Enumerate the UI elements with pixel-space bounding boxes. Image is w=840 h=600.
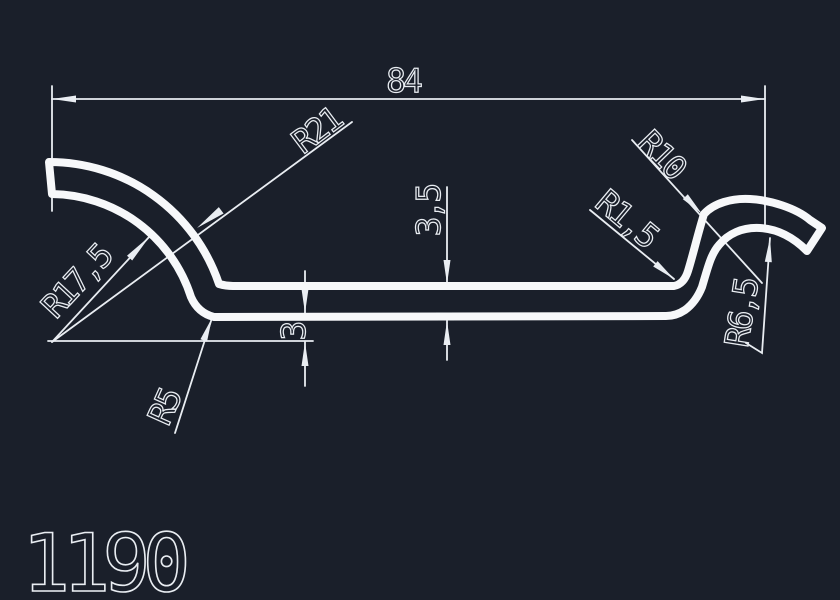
- arrow-84-left: [52, 96, 76, 103]
- arrow-3-down: [302, 289, 309, 313]
- cad-drawing-canvas: 84 R21 R17,5 R5 3 3,5 R10 R1,5 R6,5 1190: [0, 0, 840, 600]
- label-width-84: 84: [386, 61, 422, 100]
- label-r1-5: R1,5: [588, 182, 666, 256]
- arrow-r10: [683, 194, 702, 214]
- label-r21: R21: [284, 99, 349, 161]
- arrow-3-up: [302, 342, 309, 366]
- label-r5: R5: [140, 383, 190, 431]
- profile-outline: [49, 162, 822, 317]
- arrow-r5: [200, 318, 212, 342]
- label-thickness-3-5: 3,5: [409, 185, 448, 237]
- drawing-svg: 84 R21 R17,5 R5 3 3,5 R10 R1,5 R6,5 1190: [0, 0, 840, 600]
- label-r10: R10: [630, 123, 694, 187]
- arrow-r17-5: [127, 236, 150, 261]
- arrow-r1-5: [653, 261, 674, 279]
- label-r17-5: R17,5: [33, 236, 120, 325]
- arrow-r6-5: [765, 238, 772, 262]
- arrow-84-right: [741, 96, 765, 103]
- part-number-text: 1190: [22, 517, 185, 600]
- arrow-3-5-down: [444, 260, 451, 284]
- label-r6-5: R6,5: [717, 276, 766, 350]
- dimension-labels: 84 R21 R17,5 R5 3 3,5 R10 R1,5 R6,5: [33, 61, 766, 431]
- arrow-3-5-up: [444, 321, 451, 345]
- label-thickness-3: 3: [274, 322, 313, 340]
